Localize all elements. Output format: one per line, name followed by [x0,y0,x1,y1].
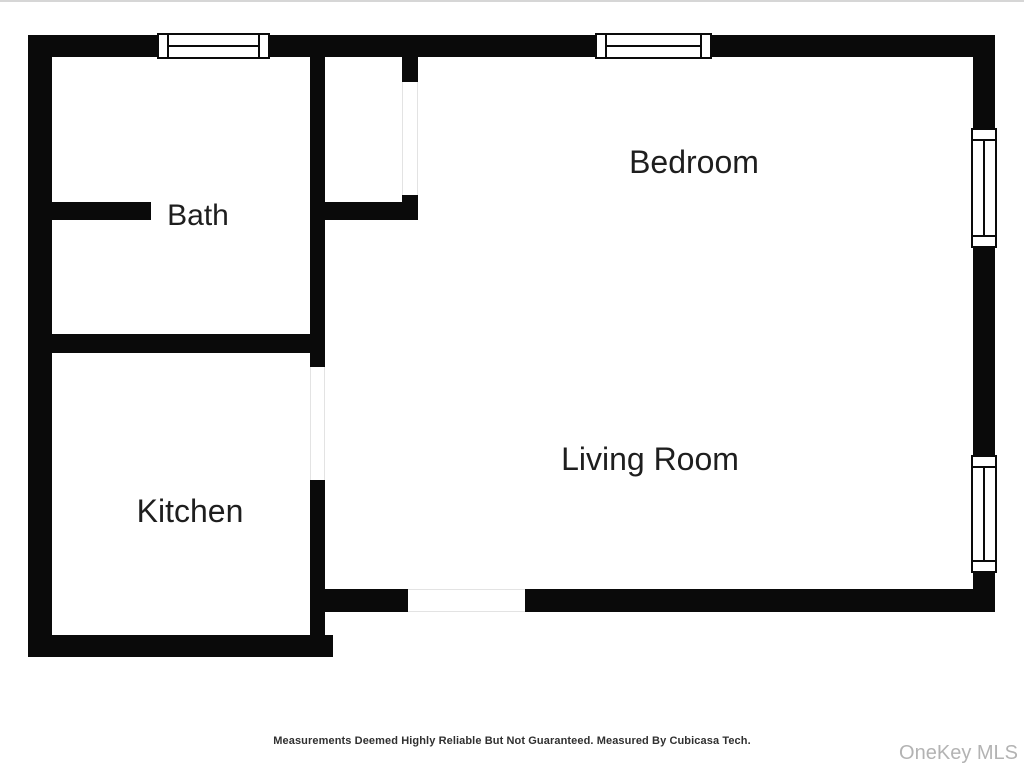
wall-bath-stub [52,202,151,220]
window-frame-line [973,560,995,562]
door-opening-entry-bottom-jamb [408,611,525,612]
window-glass-line [169,45,258,47]
watermark-text: OneKey MLS [899,742,1018,765]
room-label-livingroom: Living Room [561,443,739,475]
window-glass-line [607,45,700,47]
wall-middle-vertical-upper [310,57,325,367]
room-label-bath: Bath [167,201,229,231]
window-icon-livingroom-right [971,455,997,573]
wall-exterior-left [28,35,52,657]
wall-middle-vertical-lower [310,480,325,657]
door-opening-closet-left-jamb [402,82,403,195]
door-opening-kitchen-right-jamb [324,367,325,480]
window-frame-line [700,35,702,57]
room-label-kitchen: Kitchen [137,495,244,527]
door-opening-entry-top-jamb [408,589,525,590]
wall-livingroom-bottom-left [325,589,408,612]
door-opening-closet-right-jamb [417,82,418,195]
wall-livingroom-bottom-right [525,589,995,612]
window-icon-bedroom-top [595,33,712,59]
wall-closet-bottom [325,202,418,220]
window-glass-line [983,141,985,235]
door-opening-kitchen-left-jamb [310,367,311,480]
image-top-border [0,0,1024,2]
disclaimer-text: Measurements Deemed Highly Reliable But … [273,735,750,747]
window-frame-line [258,35,260,57]
wall-closet-right-upper [402,57,418,82]
floorplan-image: Bath Kitchen Bedroom Living Room Measure… [0,0,1024,768]
wall-bath-bottom [52,334,310,353]
window-icon-bath-top [157,33,270,59]
room-label-bedroom: Bedroom [629,146,759,178]
window-frame-line [973,235,995,237]
wall-exterior-bottom-kitchen [28,635,333,657]
window-glass-line [983,468,985,560]
window-icon-bedroom-right [971,128,997,248]
